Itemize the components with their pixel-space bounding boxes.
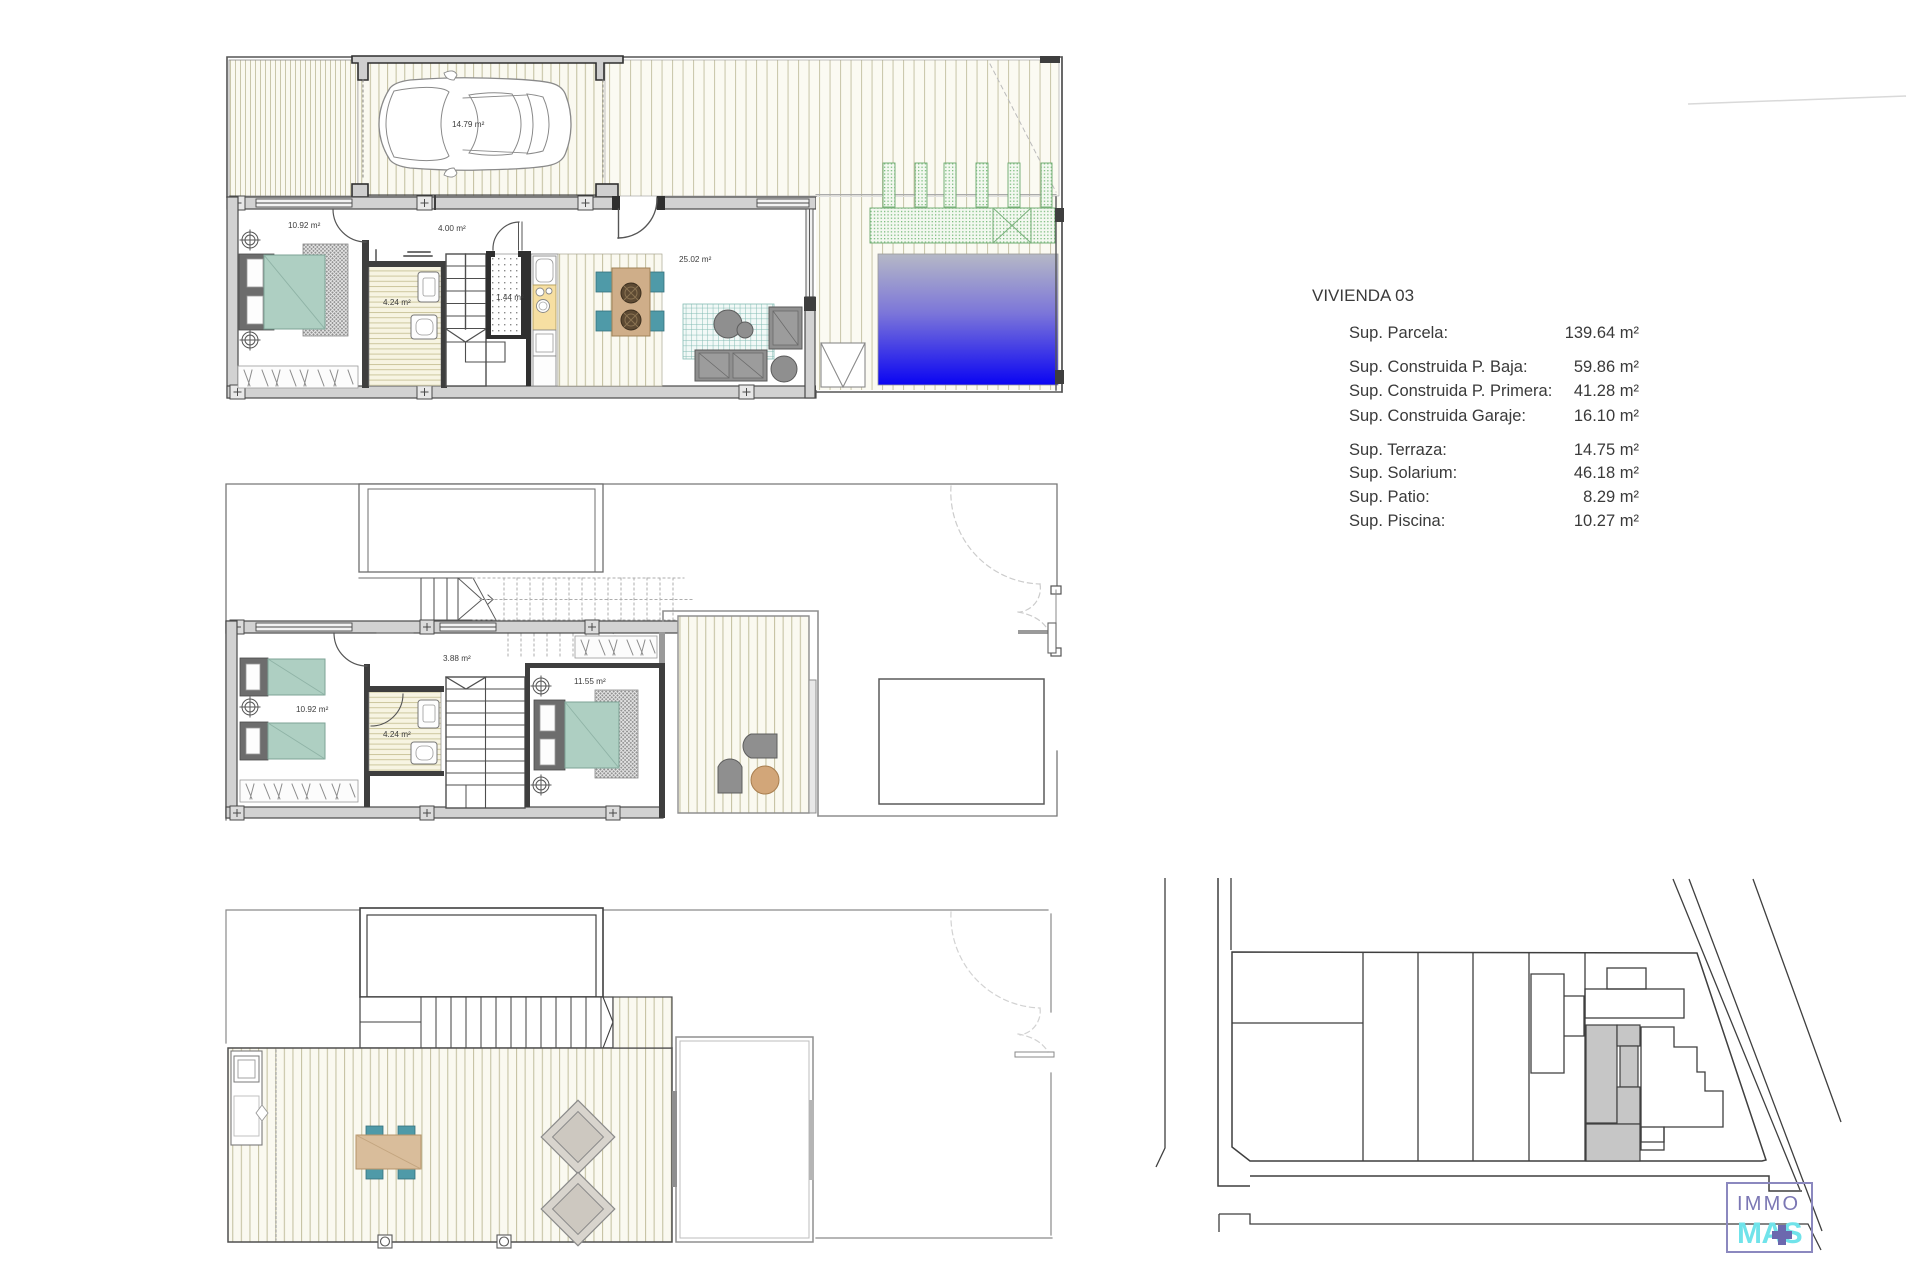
svg-text:11.55 m²: 11.55 m² [574,677,606,686]
svg-text:4.24 m²: 4.24 m² [383,298,411,307]
svg-text:25.02 m²: 25.02 m² [679,255,712,264]
svg-text:IMMO: IMMO [1737,1193,1800,1215]
svg-text:16.10 m²: 16.10 m² [1574,407,1640,425]
svg-text:Sup. Construida Garaje:: Sup. Construida Garaje: [1349,407,1526,425]
svg-text:Sup. Construida P. Primera:: Sup. Construida P. Primera: [1349,382,1552,400]
svg-text:10.92 m²: 10.92 m² [296,705,329,714]
svg-text:Sup. Construida P. Baja:: Sup. Construida P. Baja: [1349,358,1528,376]
svg-text:Sup. Parcela:: Sup. Parcela: [1349,324,1448,342]
svg-text:14.75 m²: 14.75 m² [1574,441,1640,459]
svg-text:59.86 m²: 59.86 m² [1574,358,1640,376]
svg-text:4.00 m²: 4.00 m² [438,224,466,233]
svg-text:139.64 m²: 139.64 m² [1565,324,1640,342]
svg-text:VIVIENDA 03: VIVIENDA 03 [1312,286,1414,305]
svg-text:14.79 m²: 14.79 m² [452,120,485,129]
svg-text:3.88 m²: 3.88 m² [443,654,471,663]
svg-text:MAS: MAS [1737,1217,1802,1250]
svg-text:10.92 m²: 10.92 m² [288,221,321,230]
svg-text:8.29 m²: 8.29 m² [1583,488,1639,506]
svg-text:Sup. Piscina:: Sup. Piscina: [1349,512,1445,530]
svg-text:10.27 m²: 10.27 m² [1574,512,1640,530]
svg-text:Sup. Patio:: Sup. Patio: [1349,488,1430,506]
svg-text:4.24 m²: 4.24 m² [383,730,411,739]
svg-text:41.28 m²: 41.28 m² [1574,382,1640,400]
svg-text:1.44 m²: 1.44 m² [496,293,524,302]
svg-text:46.18 m²: 46.18 m² [1574,464,1640,482]
svg-text:Sup. Solarium:: Sup. Solarium: [1349,464,1457,482]
svg-text:Sup. Terraza:: Sup. Terraza: [1349,441,1447,459]
